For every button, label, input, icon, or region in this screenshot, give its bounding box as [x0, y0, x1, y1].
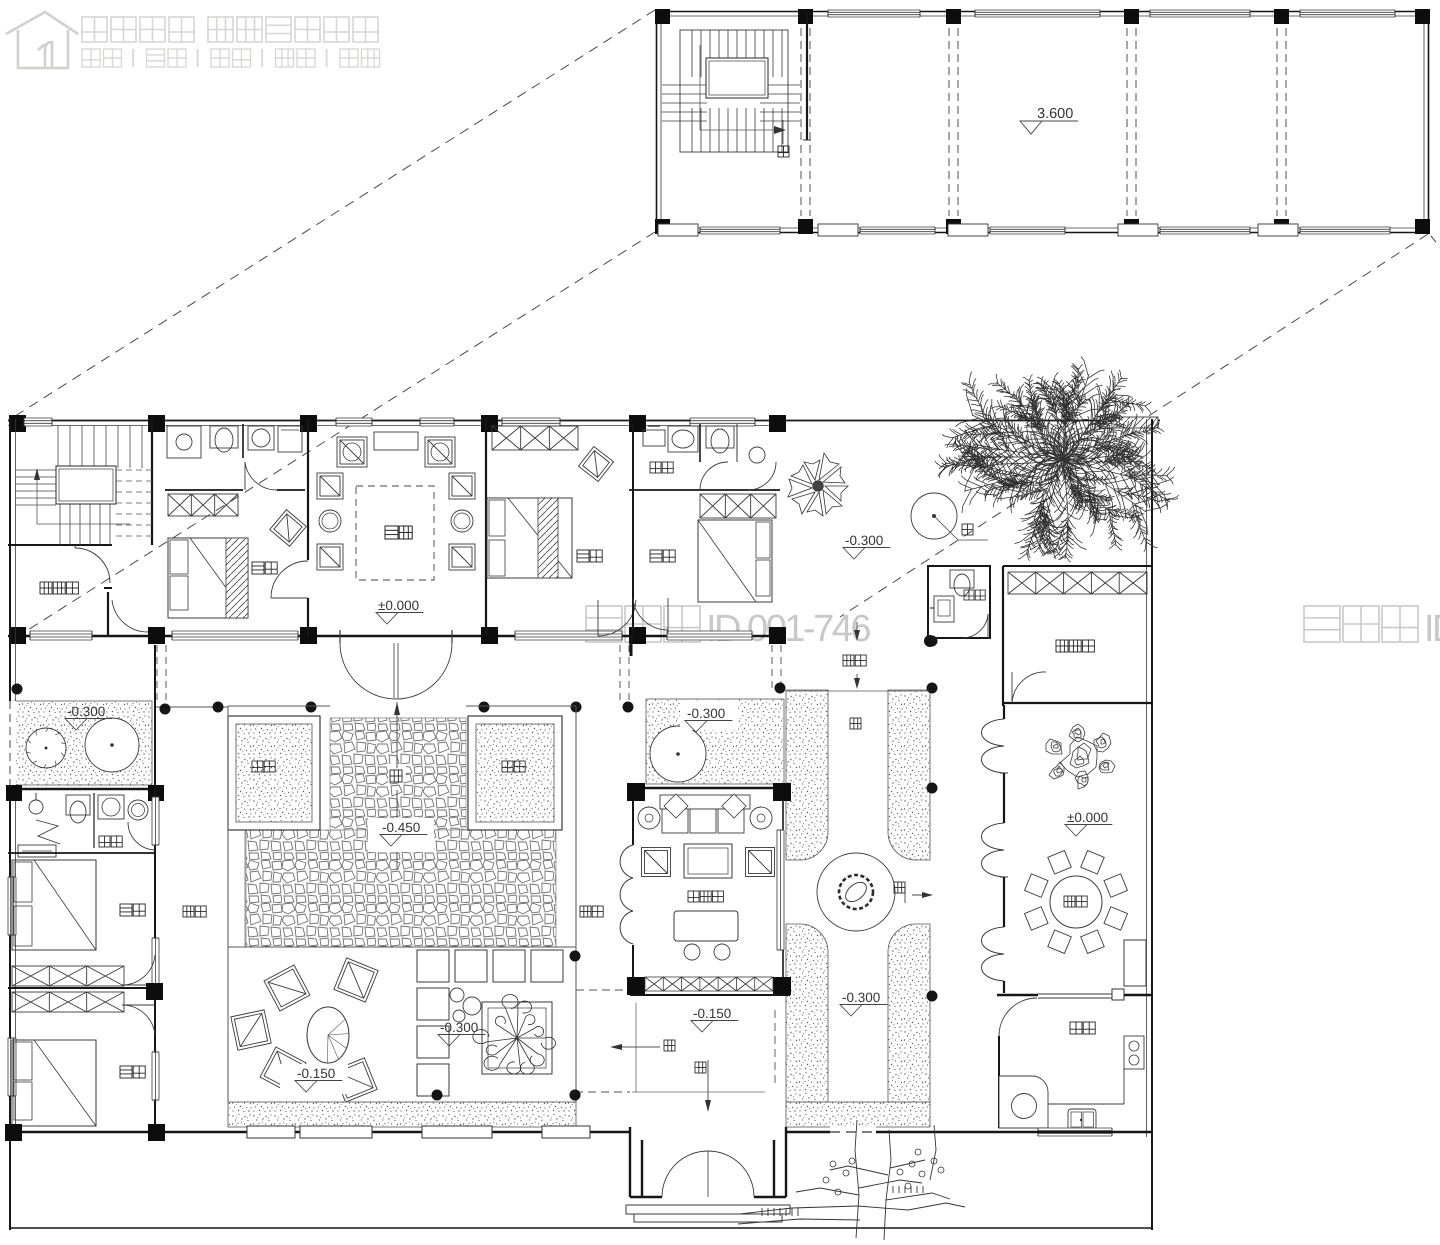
- svg-text:ID 001-746: ID 001-746: [706, 608, 870, 650]
- svg-text:-0.150: -0.150: [297, 1066, 335, 1081]
- svg-text:-0.150: -0.150: [693, 1006, 731, 1021]
- svg-text:±0.000: ±0.000: [378, 598, 419, 613]
- svg-text:±0.000: ±0.000: [1067, 810, 1108, 825]
- svg-text:3.600: 3.600: [1037, 106, 1073, 122]
- svg-text:-0.300: -0.300: [440, 1020, 478, 1035]
- svg-text:-0.300: -0.300: [67, 704, 105, 719]
- svg-text:-0.450: -0.450: [382, 820, 420, 835]
- svg-text:ID: ID: [1424, 608, 1440, 650]
- svg-text:-0.300: -0.300: [687, 706, 725, 721]
- svg-text:-0.300: -0.300: [845, 533, 883, 548]
- svg-text:-0.300: -0.300: [842, 990, 880, 1005]
